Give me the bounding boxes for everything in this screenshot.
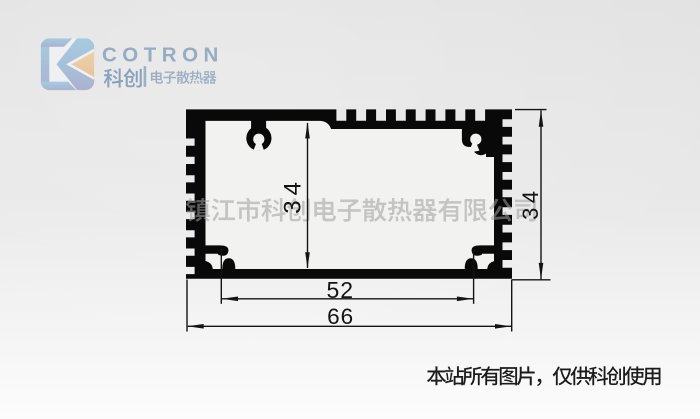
svg-text:52: 52: [327, 277, 355, 303]
svg-text:34: 34: [280, 177, 307, 214]
svg-text:66: 66: [327, 304, 354, 329]
svg-text:34: 34: [518, 186, 543, 219]
svg-text:COTRON: COTRON: [102, 43, 224, 66]
